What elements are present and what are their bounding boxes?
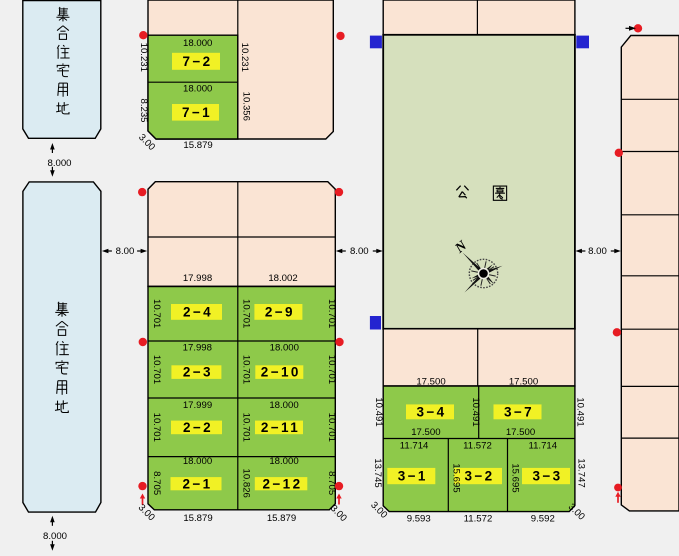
svg-text:11.714: 11.714 <box>400 440 429 451</box>
svg-text:17.500: 17.500 <box>411 427 440 438</box>
svg-text:10.491: 10.491 <box>470 397 481 426</box>
svg-text:7−1: 7−1 <box>182 105 212 120</box>
svg-text:18.000: 18.000 <box>269 400 298 411</box>
svg-text:10.701: 10.701 <box>326 355 337 384</box>
svg-text:17.500: 17.500 <box>506 427 535 438</box>
svg-text:10.826: 10.826 <box>240 469 251 498</box>
svg-text:18.000: 18.000 <box>183 456 212 467</box>
svg-text:10.701: 10.701 <box>240 413 251 442</box>
svg-text:17.999: 17.999 <box>183 400 212 411</box>
svg-text:18.002: 18.002 <box>268 273 297 284</box>
svg-text:8.705: 8.705 <box>326 471 337 495</box>
svg-text:8.00: 8.00 <box>588 246 607 257</box>
svg-text:10.231: 10.231 <box>239 43 250 72</box>
svg-text:10.701: 10.701 <box>326 413 337 442</box>
svg-text:2−2: 2−2 <box>183 420 213 435</box>
svg-text:2−10: 2−10 <box>261 365 301 380</box>
svg-text:17.998: 17.998 <box>183 273 212 284</box>
svg-text:15.879: 15.879 <box>183 513 212 524</box>
svg-text:13.745: 13.745 <box>372 458 383 487</box>
svg-text:18.000: 18.000 <box>270 342 299 353</box>
svg-text:3−7: 3−7 <box>504 405 534 420</box>
svg-text:10.231: 10.231 <box>138 43 149 72</box>
svg-text:2−1: 2−1 <box>182 476 212 491</box>
svg-text:10.491: 10.491 <box>373 397 384 426</box>
svg-text:8.000: 8.000 <box>43 531 67 542</box>
svg-text:3−2: 3−2 <box>464 469 494 484</box>
svg-text:8.00: 8.00 <box>350 246 369 257</box>
svg-text:2−3: 2−3 <box>183 365 213 380</box>
svg-text:10.701: 10.701 <box>240 355 251 384</box>
svg-text:17.998: 17.998 <box>183 342 212 353</box>
svg-text:3−4: 3−4 <box>416 405 446 420</box>
svg-text:18.000: 18.000 <box>183 84 212 95</box>
svg-text:10.701: 10.701 <box>151 413 162 442</box>
svg-text:2−9: 2−9 <box>265 305 295 320</box>
svg-text:11.572: 11.572 <box>463 440 492 451</box>
svg-text:9.592: 9.592 <box>531 513 555 524</box>
svg-text:15.879: 15.879 <box>267 513 296 524</box>
svg-text:10.701: 10.701 <box>240 299 251 328</box>
svg-text:2−4: 2−4 <box>183 305 213 320</box>
svg-text:8.000: 8.000 <box>47 158 71 169</box>
svg-text:18.000: 18.000 <box>269 456 298 467</box>
svg-text:10.491: 10.491 <box>575 397 586 426</box>
svg-text:3−3: 3−3 <box>532 469 562 484</box>
svg-text:17.500: 17.500 <box>509 376 538 387</box>
svg-text:10.701: 10.701 <box>326 299 337 328</box>
svg-text:11.714: 11.714 <box>528 440 557 451</box>
svg-text:8.705: 8.705 <box>151 471 162 495</box>
svg-text:8.00: 8.00 <box>116 246 135 257</box>
svg-text:8.235: 8.235 <box>138 98 149 122</box>
svg-text:3−1: 3−1 <box>398 469 428 484</box>
svg-text:13.747: 13.747 <box>576 458 587 487</box>
svg-text:15.879: 15.879 <box>183 140 212 151</box>
svg-text:17.500: 17.500 <box>416 376 445 387</box>
svg-text:15.695: 15.695 <box>510 463 521 492</box>
svg-text:10.701: 10.701 <box>151 299 162 328</box>
svg-text:10.356: 10.356 <box>241 92 252 121</box>
svg-text:2−12: 2−12 <box>262 476 302 491</box>
svg-text:15.695: 15.695 <box>451 463 462 492</box>
svg-text:11.572: 11.572 <box>464 513 493 524</box>
svg-text:10.701: 10.701 <box>151 355 162 384</box>
svg-text:7−2: 7−2 <box>182 54 212 69</box>
svg-text:2−11: 2−11 <box>261 420 300 435</box>
svg-text:9.593: 9.593 <box>407 513 431 524</box>
svg-text:18.000: 18.000 <box>183 38 212 49</box>
